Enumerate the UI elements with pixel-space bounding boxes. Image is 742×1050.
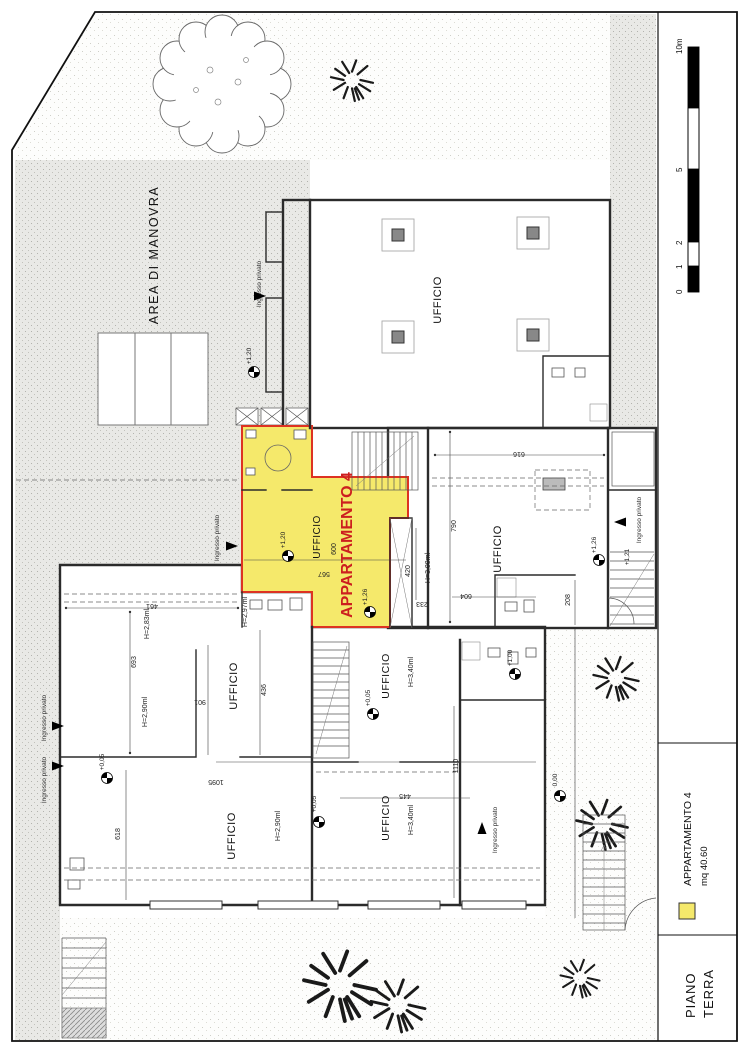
height-h300: H=3,00ml [425, 552, 432, 583]
dim-790: 790 [451, 520, 458, 532]
dim-1095: 1095 [208, 778, 224, 785]
level-121: +1,21 [624, 548, 631, 565]
dim-461: 461 [146, 602, 158, 609]
height-h290-a: H=2,90ml [142, 696, 149, 727]
scale-bar: 0 1 2 5 10m [675, 38, 699, 294]
dim-600: 600 [331, 543, 338, 555]
room-label-ufficio-top: UFFICIO [432, 276, 444, 324]
dim-901: 901 [194, 698, 206, 705]
legend-swatch [679, 903, 695, 919]
apartment-4-label: APPARTAMENTO 4 [339, 472, 356, 618]
scale-tick-5: 5 [675, 167, 684, 172]
floor-plan-drawing: 0 1 2 5 10m APPARTAMENTO 4 mq 40.60 PIAN… [0, 0, 742, 1050]
level-126-b: +1,26 [591, 536, 598, 553]
room-label-ufficio-center: UFFICIO [380, 653, 392, 699]
level-000: 0,00 [552, 773, 559, 786]
height-h297: H=2,97ml [242, 596, 249, 627]
dim-208: 208 [565, 594, 572, 606]
height-h283: H=2,83ml [144, 608, 151, 639]
room-label-ufficio-lowleft: UFFICIO [226, 812, 238, 860]
dim-693: 693 [131, 656, 138, 668]
floor-title: PIANO TERRA [683, 969, 716, 1018]
dim-567: 567 [318, 570, 330, 577]
dim-604: 604 [460, 592, 472, 599]
entrance-right: Ingresso privato [636, 496, 643, 543]
entrance-left-1: Ingresso privato [41, 694, 48, 741]
dim-616: 616 [513, 450, 525, 457]
entrance-bottom: Ingresso privato [492, 806, 499, 853]
room-label-ufficio-midleft: UFFICIO [228, 662, 240, 710]
entrance-arrow [478, 822, 487, 834]
floor-plan-sheet: 0 1 2 5 10m APPARTAMENTO 4 mq 40.60 PIAN… [0, 0, 742, 1050]
entrance-left-2: Ingresso privato [41, 756, 48, 803]
scale-tick-2: 2 [675, 240, 684, 245]
floor-title-line1: PIANO [683, 973, 698, 1018]
stair-right-wing [608, 552, 654, 626]
room-label-ufficio-apartment: UFFICIO [312, 515, 323, 559]
legend: APPARTAMENTO 4 mq 40.60 [679, 792, 710, 919]
dim-420: 420 [405, 565, 412, 577]
stair-center [313, 642, 349, 758]
terrace-grate [612, 432, 654, 486]
level-005-c: +0,05 [311, 795, 318, 812]
area-di-manovra-label: AREA DI MANOVRA [147, 186, 161, 325]
scale-tick-1: 1 [675, 264, 684, 269]
apartment-4-outline [242, 426, 408, 627]
parking-stalls [98, 333, 208, 425]
room-label-ufficio-right: UFFICIO [492, 525, 504, 573]
height-h290-b: H=2,90ml [275, 810, 282, 841]
level-120-a: +1,20 [246, 347, 253, 364]
dim-436: 436 [261, 684, 268, 696]
level-005-b: +0,05 [365, 689, 372, 706]
floor-title-line2: TERRA [701, 969, 716, 1018]
facade-windows [150, 901, 526, 909]
dim-233: 233 [416, 600, 428, 607]
scale-tick-10m: 10m [675, 38, 684, 54]
skylight-grates [236, 408, 308, 425]
entrance-top: Ingresso privato [256, 260, 263, 307]
apartment-4-unit [242, 426, 408, 627]
height-h340-a: H=3,40ml [408, 656, 415, 687]
legend-apartment-name: APPARTAMENTO 4 [682, 792, 694, 886]
level-126-a: +1,26 [362, 588, 369, 605]
scale-tick-0: 0 [675, 289, 684, 294]
legend-apartment-area: mq 40.60 [699, 846, 710, 886]
level-120-b: +1,20 [280, 531, 287, 548]
dim-445: 445 [399, 792, 411, 799]
level-005-a: +0,05 [99, 753, 106, 770]
dim-618: 618 [115, 828, 122, 840]
height-h340-b: H=3,40ml [408, 804, 415, 835]
entrance-arrow [614, 518, 626, 527]
dim-1110: 1110 [453, 759, 460, 774]
level-100: +1,00 [507, 649, 514, 666]
entrance-midleft: Ingresso privato [214, 514, 221, 561]
room-label-ufficio-lowcenter: UFFICIO [380, 795, 392, 841]
